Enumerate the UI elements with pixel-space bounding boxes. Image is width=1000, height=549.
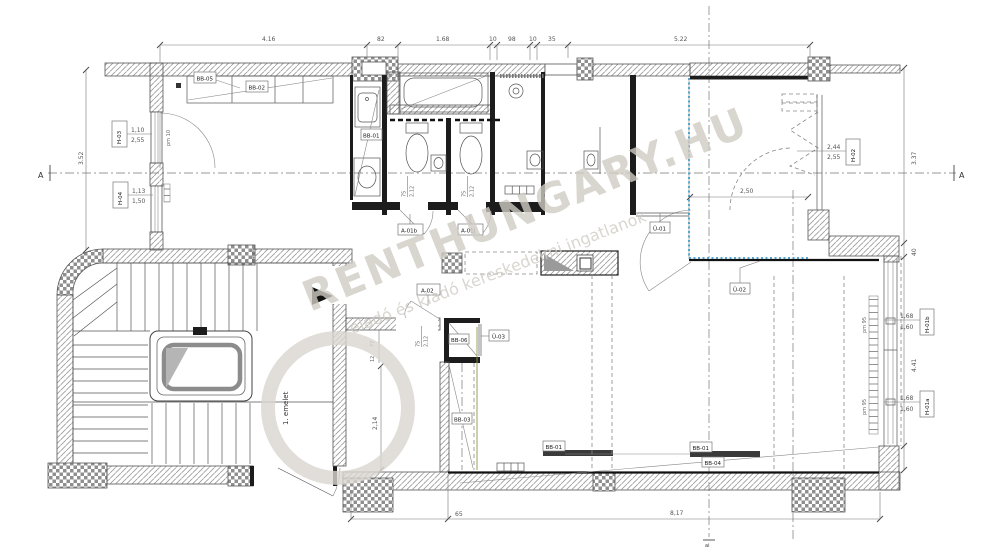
- dim-top-4: 10: [489, 36, 497, 43]
- tag-h04: H-04 1,13 1,50: [113, 182, 153, 208]
- svg-text:BB-06: BB-06: [451, 338, 468, 344]
- dim-left-overall: 3.52: [78, 151, 85, 165]
- dim-top-7: 35: [548, 36, 556, 43]
- wall-stairwell-left: [57, 295, 73, 465]
- dim-top-8: 5.22: [674, 36, 688, 43]
- floor-plan-svg: A A ai: [0, 0, 1000, 549]
- dim-right-3: 4.41: [911, 358, 918, 372]
- toilet-2: [460, 123, 482, 174]
- tag-bb01-left: BB-01: [543, 441, 565, 451]
- svg-text:1,13: 1,13: [132, 188, 146, 195]
- glass-partition-u02: [689, 78, 808, 258]
- svg-text:Ü-02: Ü-02: [733, 287, 746, 294]
- svg-text:BB-02: BB-02: [249, 86, 266, 92]
- wall-left: [150, 63, 163, 112]
- floor-plan-canvas: A A ai: [0, 0, 1000, 549]
- elevator-door: [193, 327, 207, 335]
- tag-u03: Ü-03: [481, 330, 509, 341]
- tag-bb03: BB-03: [452, 413, 472, 424]
- wall-right-room: [808, 210, 829, 240]
- radiator-right: [869, 296, 878, 434]
- tag-u02: Ü-02: [730, 261, 760, 294]
- dim-interior-214: 2,14: [372, 416, 379, 430]
- pillar-top-3: [808, 57, 830, 81]
- svg-text:2,55: 2,55: [131, 137, 145, 144]
- svg-text:2,12: 2,12: [470, 186, 476, 197]
- svg-text:1,60: 1,60: [900, 406, 914, 413]
- dim-bottom-1: 65: [455, 511, 463, 518]
- wall-corner-round: [57, 249, 103, 295]
- svg-text:2,12: 2,12: [424, 336, 430, 347]
- dim-top-1: 4.16: [262, 36, 276, 43]
- tag-h02: H-02 2,44 2,55: [797, 139, 860, 165]
- svg-text:Ü-03: Ü-03: [492, 334, 506, 341]
- tag-h03: H-03 1,10 2,55 pm 10: [112, 121, 172, 147]
- dim-top-2: 82: [377, 36, 385, 43]
- svg-text:BB-01: BB-01: [693, 446, 710, 452]
- svg-text:H-03: H-03: [117, 130, 123, 144]
- svg-text:H-01b: H-01b: [925, 316, 931, 333]
- window-h01-band: [869, 256, 901, 446]
- section-marker-right: A: [959, 171, 965, 180]
- svg-text:BB-03: BB-03: [454, 418, 471, 424]
- dim-top-6: 10: [529, 36, 537, 43]
- section-marker-left: A: [38, 171, 44, 180]
- floor-label: 1. emelet: [282, 391, 290, 425]
- svg-text:BB-05: BB-05: [197, 77, 214, 83]
- svg-text:75: 75: [402, 191, 408, 197]
- dim-top-5: 98: [508, 36, 516, 43]
- svg-text:2,55: 2,55: [827, 154, 841, 161]
- svg-text:BB-04: BB-04: [705, 461, 722, 467]
- svg-text:H-04: H-04: [118, 191, 124, 205]
- tag-bb04: BB-04: [702, 457, 724, 467]
- svg-text:pm 10: pm 10: [166, 130, 172, 146]
- radiator-left: [164, 184, 170, 202]
- shower-drain: [509, 84, 523, 98]
- tag-bb02: BB-02: [246, 81, 268, 92]
- dim-top-3: 1.68: [436, 36, 450, 43]
- svg-text:BB-01: BB-01: [546, 445, 563, 451]
- svg-text:BB-01: BB-01: [363, 134, 380, 140]
- svg-text:2,12: 2,12: [410, 186, 416, 197]
- svg-text:pm 95: pm 95: [862, 399, 868, 415]
- svg-text:2,44: 2,44: [827, 144, 841, 151]
- dim-right-2: 40: [911, 248, 918, 256]
- svg-text:H-01a: H-01a: [925, 399, 931, 416]
- tag-bb01-shaft: BB-01: [361, 129, 382, 140]
- window-h04: [151, 186, 162, 232]
- kitchen-dot: [176, 83, 181, 88]
- window-h03: [151, 112, 162, 163]
- dim-interior-250: 2,50: [740, 188, 754, 195]
- dim-bottom-2: 8,17: [670, 510, 684, 517]
- svg-text:pm 95: pm 95: [862, 317, 868, 333]
- svg-text:1,68: 1,68: [900, 395, 914, 402]
- floor-grille: [497, 463, 524, 471]
- pillar-top-2: [577, 58, 593, 80]
- grid-axis-label: ai: [705, 543, 709, 549]
- svg-text:H-02: H-02: [851, 149, 857, 162]
- tag-bb01-right: BB-01: [690, 442, 712, 452]
- toilet-1: [406, 123, 428, 172]
- svg-text:1,50: 1,50: [132, 198, 146, 205]
- wall-top-right: [690, 63, 810, 76]
- svg-text:1,10: 1,10: [131, 127, 145, 134]
- svg-text:75: 75: [462, 191, 468, 197]
- tag-bb06: BB-06: [449, 334, 469, 344]
- svg-text:Ü-01: Ü-01: [653, 226, 666, 233]
- svg-text:1,60: 1,60: [900, 324, 914, 331]
- svg-text:1,68: 1,68: [900, 313, 914, 320]
- wall-top-mid: [398, 64, 545, 76]
- svg-text:75: 75: [416, 341, 422, 347]
- dim-right-1: 3.37: [911, 151, 918, 165]
- overhead-dashed: [465, 252, 844, 470]
- wall-top-left: [105, 63, 352, 76]
